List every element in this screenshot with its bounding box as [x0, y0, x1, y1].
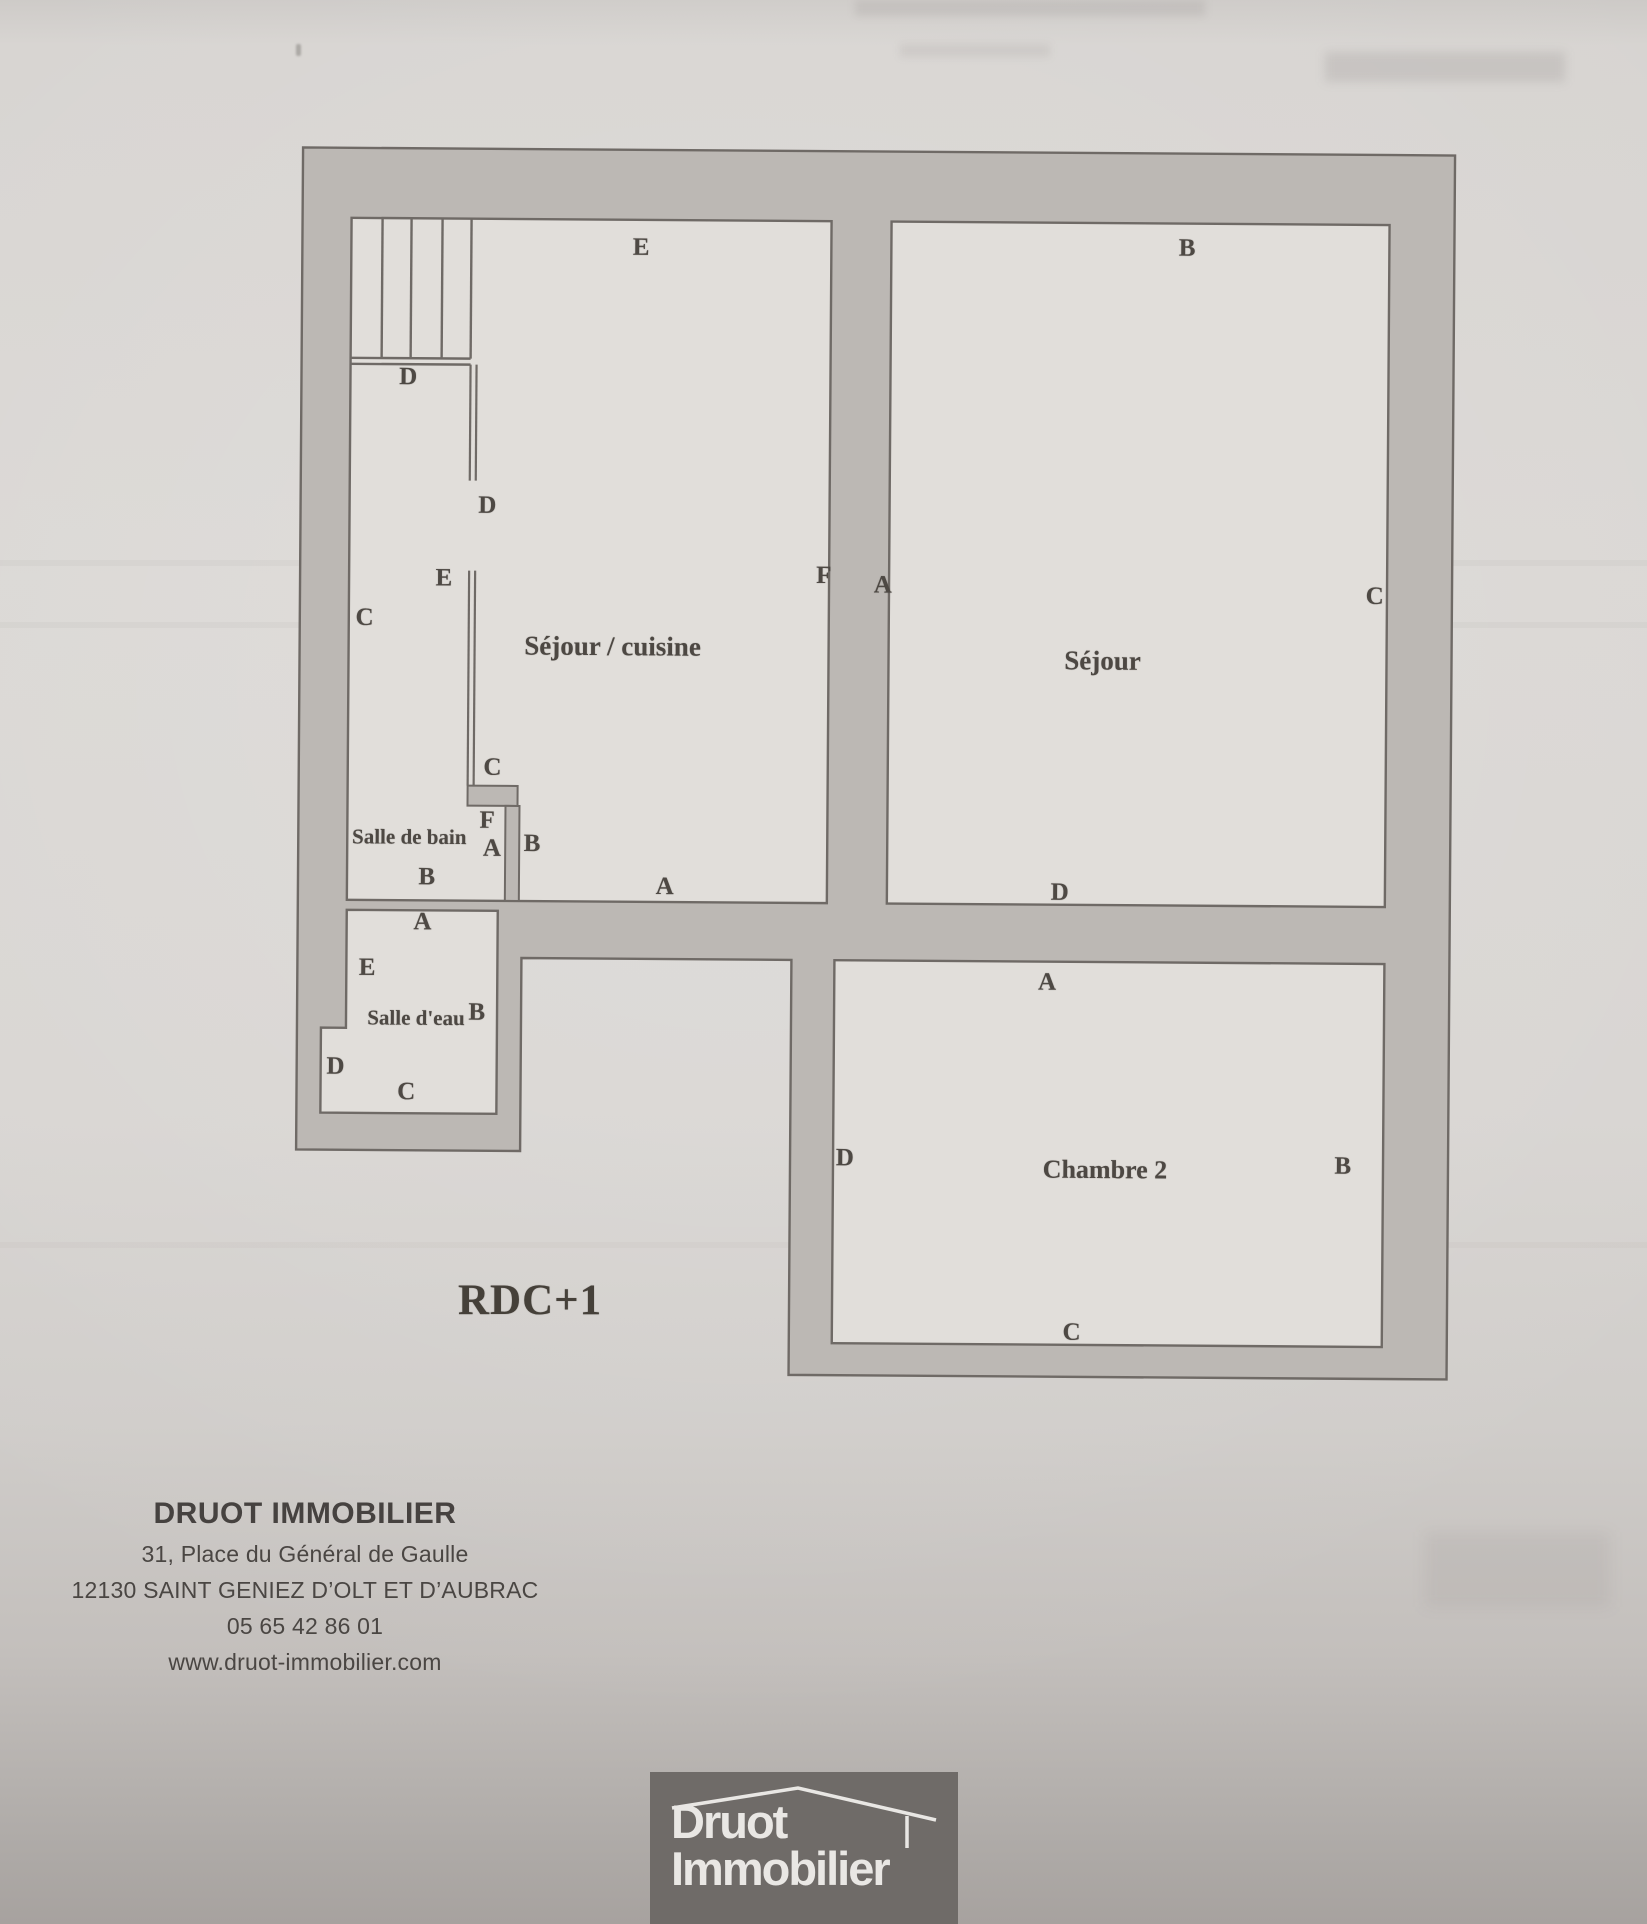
wall-segment-label-b: B — [418, 863, 435, 891]
agency-website: www.druot-immobilier.com — [38, 1649, 572, 1676]
wall-segment-label-f: F — [816, 562, 832, 590]
room-label-sejour: Séjour — [1064, 645, 1141, 677]
wall-segment-label-d: D — [836, 1144, 855, 1172]
wall-segment-label-c: C — [1062, 1319, 1081, 1347]
room-label-salle-de-bain: Salle de bain — [352, 824, 467, 850]
wall-segment-label-d: D — [1051, 879, 1070, 907]
wall-segment-label-c: C — [397, 1078, 416, 1106]
room-label-salle-deau: Salle d'eau — [367, 1005, 465, 1031]
wall-segment-label-d: D — [478, 492, 497, 520]
logo-word-2: Immobilier — [671, 1845, 889, 1892]
wall-segment-label-e: E — [633, 234, 650, 262]
wall-segment-label-f: F — [479, 807, 495, 835]
room-label-chambre-2: Chambre 2 — [1043, 1155, 1168, 1186]
wall-segment-label-a: A — [1038, 969, 1057, 997]
wall-segment-label-d: D — [326, 1053, 345, 1081]
scanned-floor-plan-page: EBDDECFACCFABBADAAEBDCDBCSéjour / cuisin… — [0, 0, 1647, 1924]
wall-segment-label-c: C — [483, 754, 502, 782]
agency-address-line2: 12130 SAINT GENIEZ D’OLT ET D’AUBRAC — [38, 1577, 572, 1604]
wall-segment-label-b: B — [524, 830, 541, 858]
agency-name: DRUOT IMMOBILIER — [38, 1497, 572, 1531]
wall-segment-label-b: B — [1179, 235, 1196, 263]
wall-segment-label-a: A — [413, 908, 432, 936]
wall-segment-label-c: C — [1366, 583, 1385, 611]
wall-segment-label-e: E — [435, 564, 452, 592]
wall-segment-label-e: E — [359, 954, 376, 982]
agency-logo: Druot Immobilier — [650, 1772, 958, 1924]
agency-address-line1: 31, Place du Général de Gaulle — [38, 1541, 572, 1568]
logo-word-1: Druot — [671, 1798, 786, 1845]
agency-block: DRUOT IMMOBILIER 31, Place du Général de… — [38, 1497, 572, 1685]
wall-segment-label-c: C — [355, 604, 374, 632]
floor-label: RDC+1 — [458, 1276, 602, 1325]
room-label-sejour-cuisine: Séjour / cuisine — [524, 631, 701, 663]
wall-segment-label-b: B — [468, 999, 485, 1027]
wall-segment-label-b: B — [1334, 1153, 1351, 1181]
wall-segment-label-a: A — [656, 873, 675, 901]
wall-segment-label-a: A — [874, 571, 893, 599]
wall-segment-label-d: D — [399, 363, 418, 391]
wall-segment-label-a: A — [483, 835, 502, 863]
agency-phone: 05 65 42 86 01 — [38, 1613, 572, 1640]
